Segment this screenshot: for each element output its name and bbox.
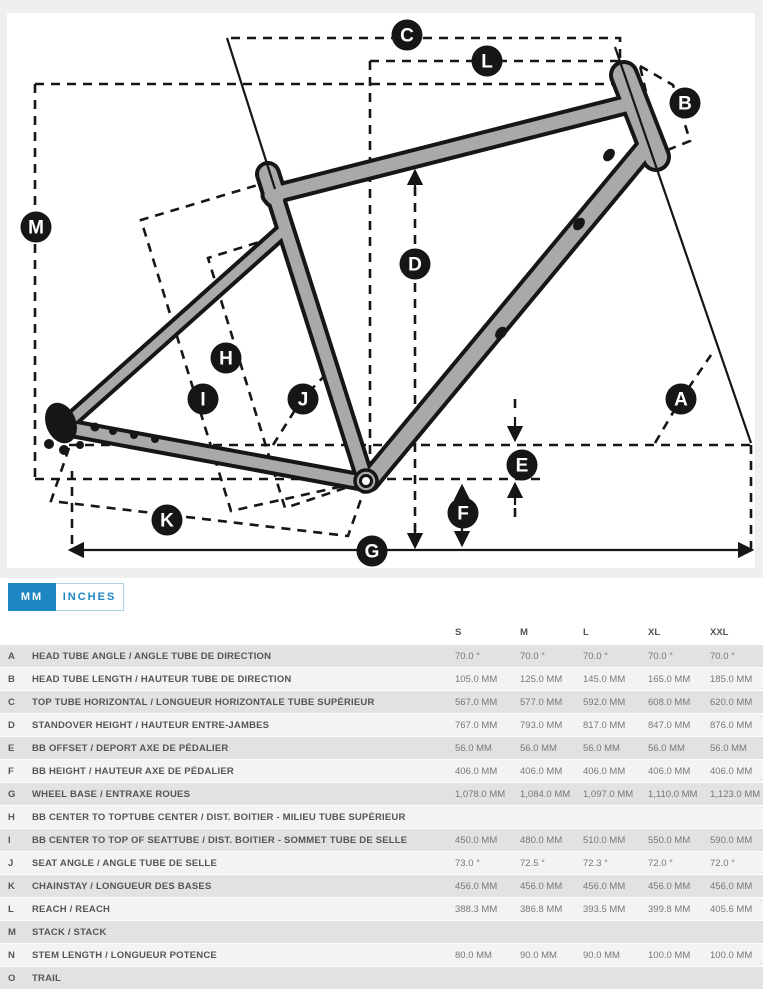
cell-value: 100.0 MM bbox=[710, 950, 763, 961]
row-label: STEM LENGTH / LONGUEUR POTENCE bbox=[32, 950, 455, 961]
frame-outline bbox=[63, 75, 656, 483]
svg-text:B: B bbox=[678, 94, 692, 115]
table-row-a: AHEAD TUBE ANGLE / ANGLE TUBE DE DIRECTI… bbox=[0, 645, 763, 668]
bike-geometry-diagram: CLBMDHIJAEFKG bbox=[7, 13, 755, 568]
table-body: AHEAD TUBE ANGLE / ANGLE TUBE DE DIRECTI… bbox=[0, 645, 763, 990]
cell-value: 590.0 MM bbox=[710, 835, 763, 846]
cell-value: 456.0 MM bbox=[583, 881, 648, 892]
geometry-table: SMLXLXXL AHEAD TUBE ANGLE / ANGLE TUBE D… bbox=[0, 621, 763, 990]
row-letter: K bbox=[8, 881, 32, 892]
cell-value: 80.0 MM bbox=[455, 950, 520, 961]
cell-value: 56.0 MM bbox=[648, 743, 710, 754]
cell-value: 70.0 ° bbox=[455, 651, 520, 662]
cell-value: 100.0 MM bbox=[648, 950, 710, 961]
cell-value: 72.5 ° bbox=[520, 858, 583, 869]
cell-value: 165.0 MM bbox=[648, 674, 710, 685]
column-header-xxl: XXL bbox=[710, 627, 763, 638]
table-header-row: SMLXLXXL bbox=[0, 621, 763, 645]
row-label: BB CENTER TO TOP OF SEATTUBE / DIST. BOI… bbox=[32, 835, 455, 846]
row-letter: A bbox=[8, 651, 32, 662]
cell-value: 608.0 MM bbox=[648, 697, 710, 708]
marker-k: K bbox=[152, 505, 183, 536]
cell-value: 56.0 MM bbox=[520, 743, 583, 754]
row-letter: E bbox=[8, 743, 32, 754]
cell-value: 70.0 ° bbox=[710, 651, 763, 662]
cell-value: 56.0 MM bbox=[710, 743, 763, 754]
column-header-m: M bbox=[520, 627, 583, 638]
row-label: STANDOVER HEIGHT / HAUTEUR ENTRE-JAMBES bbox=[32, 720, 455, 731]
cell-value: 405.6 MM bbox=[710, 904, 763, 915]
marker-g: G bbox=[357, 536, 388, 567]
cell-value: 510.0 MM bbox=[583, 835, 648, 846]
cell-value: 386.8 MM bbox=[520, 904, 583, 915]
cell-value: 70.0 ° bbox=[648, 651, 710, 662]
table-row-l: LREACH / REACH388.3 MM386.8 MM393.5 MM39… bbox=[0, 898, 763, 921]
svg-text:C: C bbox=[400, 26, 414, 47]
cell-value: 125.0 MM bbox=[520, 674, 583, 685]
cell-value: 393.5 MM bbox=[583, 904, 648, 915]
cell-value: 56.0 MM bbox=[583, 743, 648, 754]
cell-value: 72.0 ° bbox=[710, 858, 763, 869]
marker-f: F bbox=[448, 498, 479, 529]
bike-frame-figure: CLBMDHIJAEFKG bbox=[7, 13, 755, 568]
column-header-l: L bbox=[583, 627, 648, 638]
row-letter: C bbox=[8, 697, 32, 708]
row-label: TOP TUBE HORIZONTAL / LONGUEUR HORIZONTA… bbox=[32, 697, 455, 708]
row-label: BB HEIGHT / HAUTEUR AXE DE PÉDALIER bbox=[32, 766, 455, 777]
table-row-d: DSTANDOVER HEIGHT / HAUTEUR ENTRE-JAMBES… bbox=[0, 714, 763, 737]
marker-l: L bbox=[472, 46, 503, 77]
row-label: BB CENTER TO TOPTUBE CENTER / DIST. BOIT… bbox=[32, 812, 455, 823]
row-letter: I bbox=[8, 835, 32, 846]
table-row-f: FBB HEIGHT / HAUTEUR AXE DE PÉDALIER406.… bbox=[0, 760, 763, 783]
cell-value: 793.0 MM bbox=[520, 720, 583, 731]
svg-text:I: I bbox=[200, 390, 205, 411]
marker-b: B bbox=[670, 88, 701, 119]
svg-text:L: L bbox=[481, 52, 493, 73]
marker-i: I bbox=[188, 384, 219, 415]
row-label: BB OFFSET / DEPORT AXE DE PÉDALIER bbox=[32, 743, 455, 754]
row-letter: M bbox=[8, 927, 32, 938]
row-letter: O bbox=[8, 973, 32, 984]
cell-value: 456.0 MM bbox=[710, 881, 763, 892]
table-row-k: KCHAINSTAY / LONGUEUR DES BASES456.0 MM4… bbox=[0, 875, 763, 898]
column-header-s: S bbox=[455, 627, 520, 638]
cell-value: 399.8 MM bbox=[648, 904, 710, 915]
marker-c: C bbox=[392, 20, 423, 51]
svg-text:G: G bbox=[365, 542, 380, 563]
cell-value: 592.0 MM bbox=[583, 697, 648, 708]
row-label: WHEEL BASE / ENTRAXE ROUES bbox=[32, 789, 455, 800]
row-letter: H bbox=[8, 812, 32, 823]
column-header-xl: XL bbox=[648, 627, 710, 638]
svg-text:D: D bbox=[408, 255, 422, 276]
table-row-c: CTOP TUBE HORIZONTAL / LONGUEUR HORIZONT… bbox=[0, 691, 763, 714]
svg-text:E: E bbox=[516, 456, 529, 477]
row-label: CHAINSTAY / LONGUEUR DES BASES bbox=[32, 881, 455, 892]
cell-value: 185.0 MM bbox=[710, 674, 763, 685]
table-row-e: EBB OFFSET / DEPORT AXE DE PÉDALIER56.0 … bbox=[0, 737, 763, 760]
top-tube-horizontal-line bbox=[231, 38, 620, 61]
table-row-h: HBB CENTER TO TOPTUBE CENTER / DIST. BOI… bbox=[0, 806, 763, 829]
svg-text:H: H bbox=[219, 349, 233, 370]
bottom-bracket-center bbox=[361, 476, 372, 487]
svg-text:J: J bbox=[298, 390, 309, 411]
cell-value: 817.0 MM bbox=[583, 720, 648, 731]
row-letter: G bbox=[8, 789, 32, 800]
cell-value: 1,097.0 MM bbox=[583, 789, 648, 800]
cell-value: 1,084.0 MM bbox=[520, 789, 583, 800]
cell-value: 480.0 MM bbox=[520, 835, 583, 846]
cell-value: 550.0 MM bbox=[648, 835, 710, 846]
cell-value: 767.0 MM bbox=[455, 720, 520, 731]
row-label: REACH / REACH bbox=[32, 904, 455, 915]
cell-value: 145.0 MM bbox=[583, 674, 648, 685]
table-row-n: NSTEM LENGTH / LONGUEUR POTENCE80.0 MM90… bbox=[0, 944, 763, 967]
row-label: TRAIL bbox=[32, 973, 455, 984]
tab-inches[interactable]: INCHES bbox=[56, 583, 124, 611]
cell-value: 388.3 MM bbox=[455, 904, 520, 915]
cell-value: 72.0 ° bbox=[648, 858, 710, 869]
cell-value: 72.3 ° bbox=[583, 858, 648, 869]
frame-tubes bbox=[63, 75, 656, 483]
cell-value: 105.0 MM bbox=[455, 674, 520, 685]
cell-value: 90.0 MM bbox=[583, 950, 648, 961]
cell-value: 1,110.0 MM bbox=[648, 789, 710, 800]
cell-value: 577.0 MM bbox=[520, 697, 583, 708]
cell-value: 406.0 MM bbox=[710, 766, 763, 777]
cell-value: 1,123.0 MM bbox=[710, 789, 763, 800]
table-row-i: IBB CENTER TO TOP OF SEATTUBE / DIST. BO… bbox=[0, 829, 763, 852]
cell-value: 456.0 MM bbox=[455, 881, 520, 892]
cell-value: 56.0 MM bbox=[455, 743, 520, 754]
row-letter: L bbox=[8, 904, 32, 915]
cell-value: 73.0 ° bbox=[455, 858, 520, 869]
svg-text:A: A bbox=[674, 390, 688, 411]
cell-value: 847.0 MM bbox=[648, 720, 710, 731]
unit-tabs: MM INCHES bbox=[8, 583, 763, 611]
table-row-m: MSTACK / STACK bbox=[0, 921, 763, 944]
row-label: STACK / STACK bbox=[32, 927, 455, 938]
marker-m: M bbox=[21, 212, 52, 243]
cell-value: 1,078.0 MM bbox=[455, 789, 520, 800]
diagram-section: CLBMDHIJAEFKG bbox=[0, 0, 763, 578]
row-letter: F bbox=[8, 766, 32, 777]
cell-value: 876.0 MM bbox=[710, 720, 763, 731]
row-label: SEAT ANGLE / ANGLE TUBE DE SELLE bbox=[32, 858, 455, 869]
cell-value: 70.0 ° bbox=[583, 651, 648, 662]
row-letter: J bbox=[8, 858, 32, 869]
seat-tube-axis-line bbox=[227, 38, 275, 189]
svg-text:M: M bbox=[28, 218, 44, 239]
cell-value: 90.0 MM bbox=[520, 950, 583, 961]
table-row-b: BHEAD TUBE LENGTH / HAUTEUR TUBE DE DIRE… bbox=[0, 668, 763, 691]
table-row-g: GWHEEL BASE / ENTRAXE ROUES1,078.0 MM1,0… bbox=[0, 783, 763, 806]
cell-value: 450.0 MM bbox=[455, 835, 520, 846]
cell-value: 620.0 MM bbox=[710, 697, 763, 708]
row-letter: D bbox=[8, 720, 32, 731]
cell-value: 406.0 MM bbox=[583, 766, 648, 777]
marker-h: H bbox=[211, 343, 242, 374]
table-row-j: JSEAT ANGLE / ANGLE TUBE DE SELLE73.0 °7… bbox=[0, 852, 763, 875]
cell-value: 456.0 MM bbox=[648, 881, 710, 892]
marker-d: D bbox=[400, 249, 431, 280]
marker-j: J bbox=[288, 384, 319, 415]
cell-value: 406.0 MM bbox=[520, 766, 583, 777]
row-label: HEAD TUBE ANGLE / ANGLE TUBE DE DIRECTIO… bbox=[32, 651, 455, 662]
cell-value: 456.0 MM bbox=[520, 881, 583, 892]
svg-text:K: K bbox=[160, 511, 174, 532]
tab-mm[interactable]: MM bbox=[8, 583, 56, 611]
svg-text:F: F bbox=[457, 504, 469, 525]
cell-value: 567.0 MM bbox=[455, 697, 520, 708]
marker-a: A bbox=[666, 384, 697, 415]
table-row-o: OTRAIL bbox=[0, 967, 763, 990]
cell-value: 406.0 MM bbox=[455, 766, 520, 777]
row-letter: B bbox=[8, 674, 32, 685]
cell-value: 406.0 MM bbox=[648, 766, 710, 777]
row-label: HEAD TUBE LENGTH / HAUTEUR TUBE DE DIREC… bbox=[32, 674, 455, 685]
cell-value: 70.0 ° bbox=[520, 651, 583, 662]
marker-e: E bbox=[507, 450, 538, 481]
row-letter: N bbox=[8, 950, 32, 961]
